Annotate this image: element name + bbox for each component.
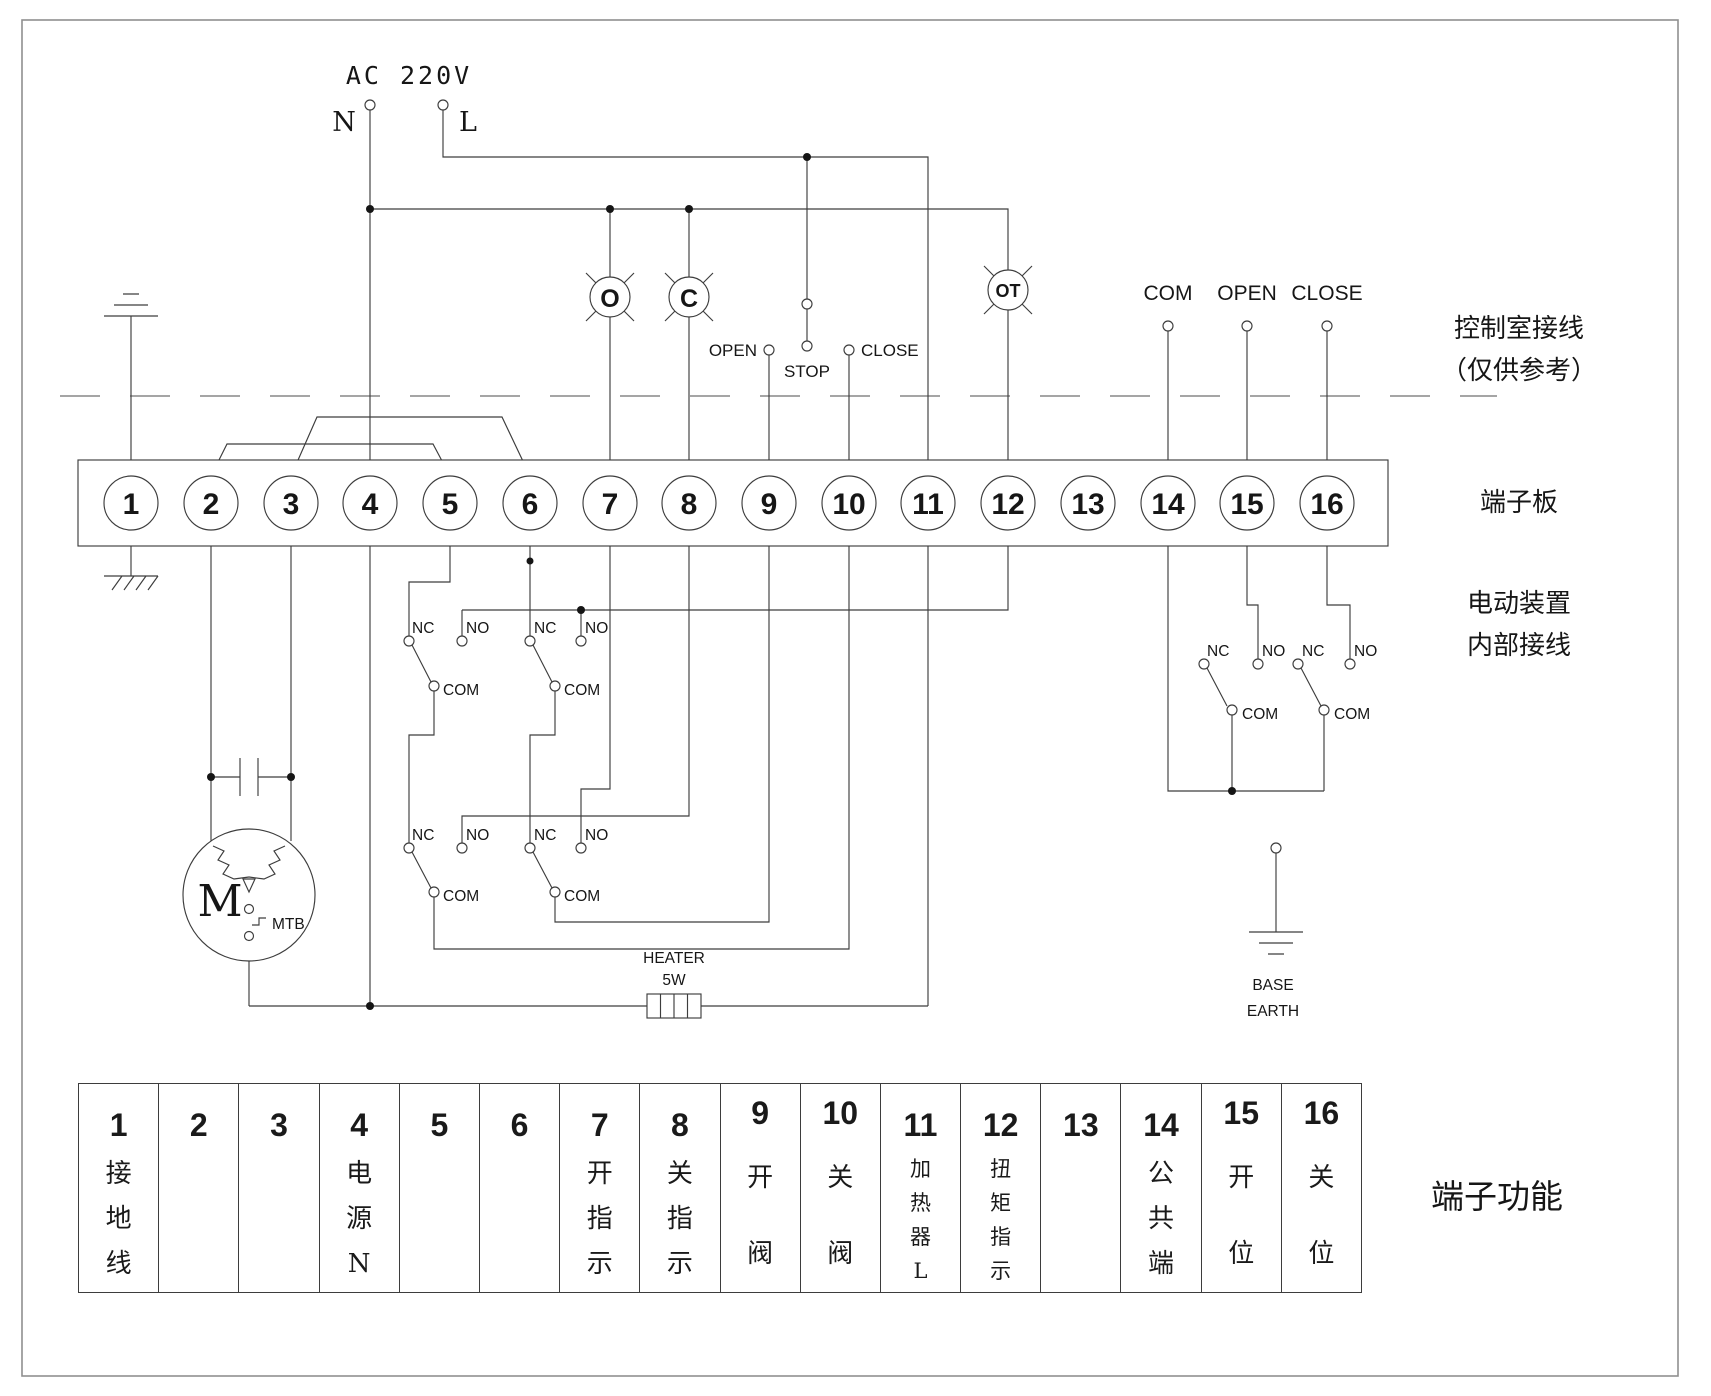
open-indicator-lamp: O (586, 273, 634, 321)
function-column-10: 10 关阀 (801, 1084, 881, 1292)
base-earth-label-1: BASE (1252, 977, 1293, 994)
column-number: 3 (270, 1084, 288, 1144)
terminal-7: 7 (602, 488, 619, 521)
nc-label: NC (412, 620, 434, 637)
column-function: 关位 (1306, 1140, 1336, 1292)
function-column-9: 9 开阀 (721, 1084, 801, 1292)
wiring-diagram-page: 1 2 3 4 5 6 7 8 9 10 11 12 13 14 15 16 O… (0, 0, 1711, 1396)
over-torque-indicator-lamp: OT (984, 266, 1032, 314)
column-number: 7 (591, 1084, 609, 1144)
terminal-3: 3 (283, 488, 300, 521)
switch-arms (412, 645, 1321, 888)
terminal-12: 12 (991, 488, 1024, 521)
column-number: 13 (1063, 1084, 1099, 1144)
terminal-15: 15 (1230, 488, 1263, 521)
column-function: 接地线 (104, 1152, 134, 1287)
function-column-8: 8 关指示 (640, 1084, 720, 1292)
column-number: 10 (822, 1084, 858, 1132)
terminal-10: 10 (832, 488, 865, 521)
base-earth-terminal (1271, 843, 1281, 853)
nc-label: NC (534, 620, 556, 637)
column-number: 4 (350, 1084, 368, 1144)
over-torque-lamp-letter: OT (996, 281, 1021, 301)
function-column-4: 4 电源N (320, 1084, 400, 1292)
control-room-note-line2: （仅供参考） (1424, 350, 1614, 392)
function-column-16: 16 关位 (1282, 1084, 1361, 1292)
terminal-5: 5 (442, 488, 459, 521)
nc-label: NC (412, 827, 434, 844)
column-function: 扭矩指示 (989, 1152, 1013, 1288)
supply-voltage-label: AC 220V (346, 61, 472, 90)
terminal-function-title: 端子功能 (1402, 1176, 1592, 1218)
function-column-6: 6 (480, 1084, 560, 1292)
column-number: 8 (671, 1084, 689, 1144)
junction-dots (207, 153, 1236, 1010)
column-number: 11 (904, 1084, 938, 1144)
terminal-9: 9 (761, 488, 778, 521)
function-column-5: 5 (400, 1084, 480, 1292)
terminal-function-table: 1 接地线 2 3 4 电源N 5 6 7 开指示 8 关指示 9 开阀 10 … (78, 1083, 1362, 1293)
terminal-6: 6 (522, 488, 539, 521)
nc-label: NC (534, 827, 556, 844)
no-label: NO (466, 620, 489, 637)
terminal-board-label: 端子板 (1424, 482, 1614, 524)
terminal-13: 13 (1071, 488, 1104, 521)
column-number: 6 (511, 1084, 529, 1144)
remote-feedback-contacts (1163, 321, 1332, 331)
com-label: COM (443, 682, 479, 699)
limit-switch-wires (409, 530, 1008, 949)
open-button-contact (764, 345, 774, 355)
com-label: COM (564, 682, 600, 699)
column-number: 1 (110, 1084, 128, 1144)
neutral-label: N (332, 107, 356, 138)
base-earth-label-2: EARTH (1247, 1003, 1299, 1020)
no-label: NO (1262, 643, 1285, 660)
column-function: 公共端 (1146, 1152, 1176, 1287)
terminal-1: 1 (123, 488, 140, 521)
open-button-label: OPEN (709, 341, 757, 360)
close-lamp-letter: C (680, 285, 698, 313)
remote-terminal-wires (1168, 331, 1327, 476)
function-column-7: 7 开指示 (560, 1084, 640, 1292)
heater-label: HEATER (643, 950, 705, 967)
function-column-3: 3 (239, 1084, 319, 1292)
function-column-2: 2 (159, 1084, 239, 1292)
column-function: 关指示 (665, 1152, 695, 1287)
com-label: COM (443, 888, 479, 905)
column-number: 12 (983, 1084, 1019, 1144)
live-label: L (459, 107, 477, 138)
terminal-11: 11 (912, 488, 944, 521)
close-button-label: CLOSE (861, 341, 919, 360)
remote-open-label: OPEN (1217, 282, 1277, 305)
remote-com-label: COM (1144, 282, 1193, 305)
nc-label: NC (1207, 643, 1229, 660)
no-label: NO (585, 827, 608, 844)
internal-wiring-label-line2: 内部接线 (1424, 625, 1614, 667)
supply-terminals (365, 100, 448, 110)
column-number: 14 (1143, 1084, 1179, 1144)
terminal-14: 14 (1151, 488, 1185, 521)
terminal-4: 4 (362, 488, 379, 521)
column-function: 开阀 (745, 1140, 775, 1292)
pushbutton-wires (769, 309, 849, 476)
mtb-label: MTB (272, 916, 305, 933)
terminal-16: 16 (1310, 488, 1343, 521)
heater: HEATER 5W (643, 950, 705, 1018)
function-column-1: 1 接地线 (79, 1084, 159, 1292)
column-function: 加热器L (908, 1152, 932, 1288)
control-room-note: 控制室接线 （仅供参考） (1424, 308, 1614, 392)
remote-close-label: CLOSE (1291, 282, 1362, 305)
terminal-board: 1 2 3 4 5 6 7 8 9 10 11 12 13 14 15 16 (78, 460, 1388, 546)
torque-switch-contacts (404, 636, 586, 691)
function-column-15: 15 开位 (1202, 1084, 1282, 1292)
motor: M MTB (183, 829, 315, 961)
column-function: 开位 (1226, 1140, 1256, 1292)
nc-label: NC (1302, 643, 1324, 660)
stop-button-label: STOP (784, 362, 830, 381)
heater-neutral-wires (249, 530, 928, 1006)
column-function: 关阀 (825, 1140, 855, 1292)
column-number: 5 (430, 1084, 448, 1144)
base-earth-symbol (1249, 853, 1303, 954)
column-number: 16 (1304, 1084, 1340, 1132)
close-button-contact (844, 345, 854, 355)
column-number: 15 (1223, 1084, 1259, 1132)
internal-wiring-label: 电动装置 内部接线 (1424, 583, 1614, 667)
function-column-13: 13 (1041, 1084, 1121, 1292)
column-number: 2 (190, 1084, 208, 1144)
com-label: COM (1334, 706, 1370, 723)
control-room-note-line1: 控制室接线 (1424, 308, 1614, 350)
com-label: COM (564, 888, 600, 905)
no-label: NO (466, 827, 489, 844)
motor-letter: M (197, 876, 242, 927)
function-column-14: 14 公共端 (1121, 1084, 1201, 1292)
open-lamp-letter: O (600, 285, 619, 313)
com-label: COM (1242, 706, 1278, 723)
column-function: 电源N (344, 1152, 374, 1287)
limit-switch-contacts (404, 843, 586, 897)
column-function: 开指示 (585, 1152, 615, 1287)
close-indicator-lamp: C (665, 273, 713, 321)
no-label: NO (1354, 643, 1377, 660)
no-label: NO (585, 620, 608, 637)
terminal-8: 8 (681, 488, 698, 521)
internal-wiring-label-line1: 电动装置 (1424, 583, 1614, 625)
terminal-2: 2 (203, 488, 220, 521)
column-number: 9 (751, 1084, 769, 1132)
function-column-12: 12 扭矩指示 (961, 1084, 1041, 1292)
earth-wire-top (104, 294, 158, 476)
function-column-11: 11 加热器L (881, 1084, 961, 1292)
heater-wattage: 5W (662, 972, 686, 989)
